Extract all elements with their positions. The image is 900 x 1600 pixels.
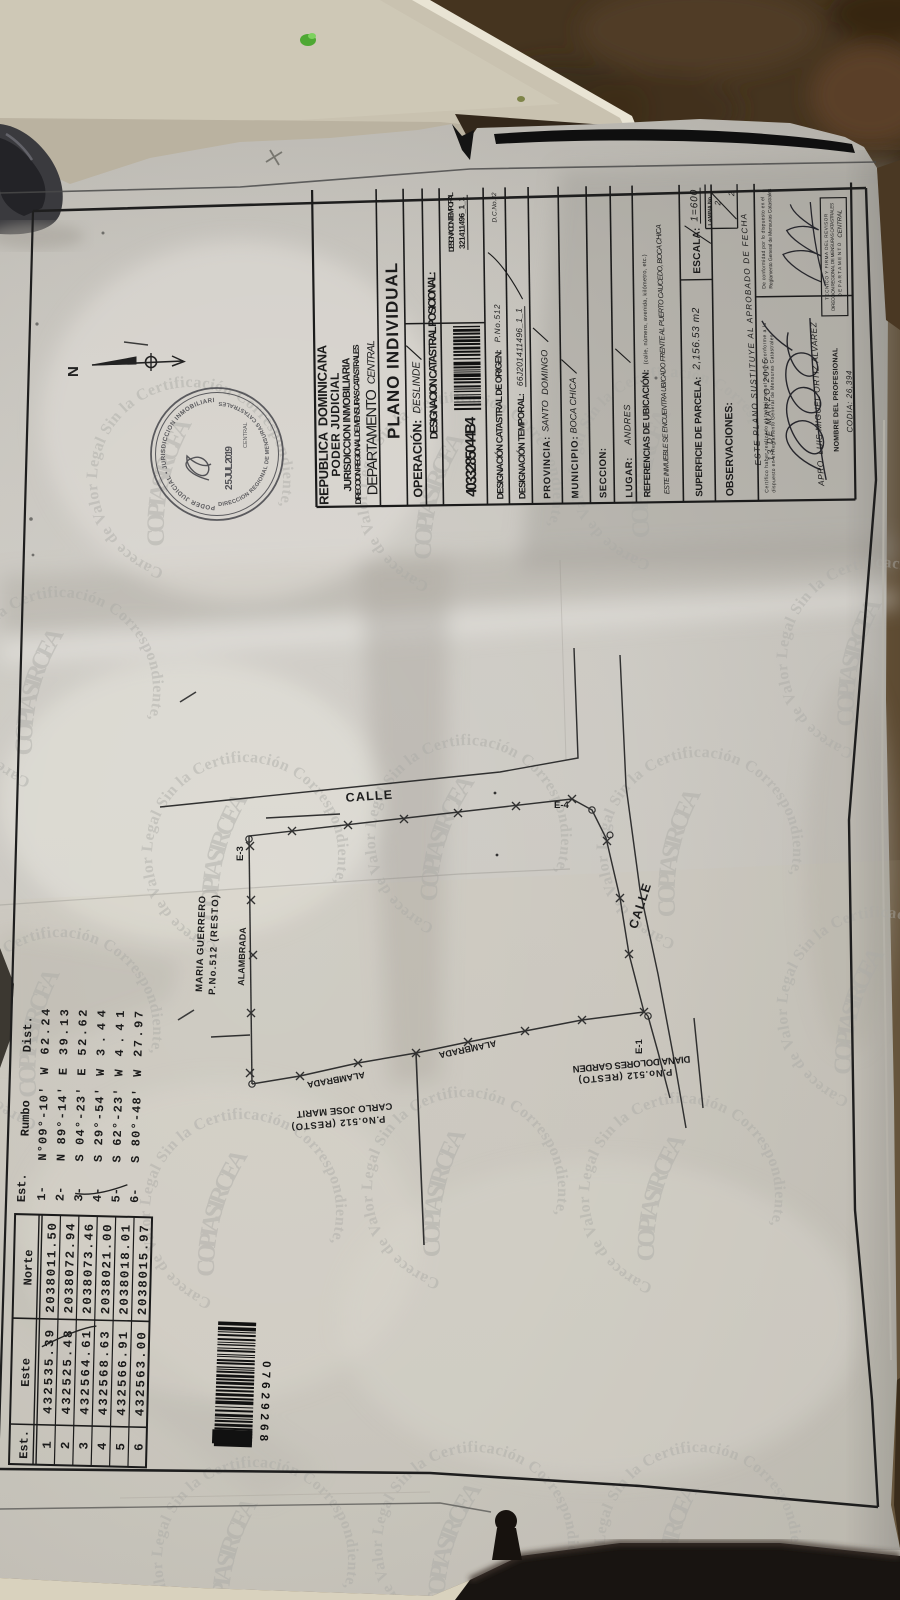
svg-text:4: 4 [96,1442,110,1450]
svg-text:SANTO DOMINGO: SANTO DOMINGO [539,350,550,432]
svg-text:6: 6 [133,1443,147,1451]
svg-text:REFERENCIAS DE UBICACIÓN:: REFERENCIAS DE UBICACIÓN: [640,369,653,497]
svg-text:ANDRES: ANDRES [622,405,633,446]
svg-text:N°09°-10': N°09°-10' [36,1087,52,1161]
svg-text:S 62°-23': S 62°-23' [110,1088,126,1162]
svg-text:BOCA CHICA: BOCA CHICA [568,377,579,433]
svg-text:432568.63: 432568.63 [97,1331,113,1415]
svg-text:2-: 2- [54,1187,68,1202]
svg-text:E-4: E-4 [554,800,570,811]
svg-text:2,156.53 m2: 2,156.53 m2 [691,307,703,371]
svg-text:432564.61: 432564.61 [78,1331,94,1415]
svg-text:2038072.94: 2038072.94 [62,1223,78,1314]
svg-text:432566.91: 432566.91 [115,1332,131,1416]
svg-text:66J201411496_1_1: 66J201411496_1_1 [514,308,525,386]
svg-text:PLANO INDIVIDUAL: PLANO INDIVIDUAL [382,263,403,439]
svg-text:2: 2 [727,191,736,197]
svg-text:CENTRAL: CENTRAL [243,422,249,448]
svg-text:2038021.00: 2038021.00 [99,1224,115,1314]
svg-text:2038011.50: 2038011.50 [44,1223,60,1313]
svg-text:S 29°-54': S 29°-54' [92,1088,108,1162]
svg-text:SECCION:: SECCION: [598,448,610,498]
svg-text:W: W [94,1068,108,1076]
svg-text:LUGAR:: LUGAR: [624,458,636,498]
svg-text:4033285044B4: 4033285044B4 [462,416,480,497]
svg-text:DESLINDE: DESLINDE [410,361,423,414]
svg-text:CODIA: 26,394: CODIA: 26,394 [845,370,855,433]
svg-text:OBSERVACIONES:: OBSERVACIONES: [723,402,736,496]
svg-text:4-: 4- [91,1187,105,1202]
svg-text:2038073.46: 2038073.46 [81,1224,97,1314]
svg-text:E: E [57,1068,71,1076]
svg-text:DESIGNACIÓN TEMPORAL:: DESIGNACIÓN TEMPORAL: [515,393,527,499]
svg-text:OPERACIÓN:: OPERACIÓN: [409,419,425,497]
svg-text:D.C.No.32: D.C.No.32 [491,192,498,223]
svg-text:SUPERFICIE DE PARCELA:: SUPERFICIE DE PARCELA: [693,377,706,497]
svg-text:2 5 JUL 2019: 2 5 JUL 2019 [224,446,235,490]
svg-text:P.No.512: P.No.512 [493,304,503,343]
svg-text:Est.: Est. [17,1430,32,1459]
svg-text:6-: 6- [128,1188,142,1203]
svg-text:PROVINCIA:: PROVINCIA: [542,437,554,499]
svg-text:62.24: 62.24 [39,1009,54,1055]
svg-text:Norte: Norte [21,1249,36,1285]
svg-text:Este: Este [19,1358,34,1387]
svg-text:432563.00: 432563.00 [133,1332,149,1416]
svg-text:Est.: Est. [15,1173,30,1202]
svg-text:Dist.: Dist. [21,1016,36,1052]
svg-text:S 80°-48': S 80°-48' [129,1089,145,1163]
svg-text:27.97: 27.97 [132,1011,147,1057]
svg-text:De conformidad por lo dispuest: De conformidad por lo dispuesto en el [760,197,767,289]
svg-text:3: 3 [77,1442,91,1450]
svg-text:321411496_1_1: 321411496_1_1 [457,196,467,249]
svg-text:W: W [131,1069,145,1077]
svg-text:DESIGNACION CATASTRAL POSICION: DESIGNACION CATASTRAL POSICIONAL: [426,271,440,439]
svg-text:W: W [38,1067,52,1075]
svg-text:E-1: E-1 [634,1039,645,1055]
svg-text:DEPARTAMENTO: DEPARTAMENTO [364,389,381,495]
svg-text:2038015.97: 2038015.97 [136,1225,152,1315]
svg-text:W: W [112,1068,126,1076]
svg-text:DESIGNACIÓN CATASTRAL DE ORIGE: DESIGNACIÓN CATASTRAL DE ORIGEN: [492,349,505,499]
svg-text:2: 2 [59,1441,73,1449]
svg-text:CENTRAL: CENTRAL [365,340,378,384]
svg-text:NOMBRE DEL PROFESIONAL: NOMBRE DEL PROFESIONAL [832,347,840,452]
svg-text:5: 5 [114,1443,128,1451]
svg-text:MUNICIPIO:: MUNICIPIO: [570,436,582,498]
svg-text:CENTRAL: CENTRAL [837,210,843,238]
svg-text:39.13: 39.13 [57,1009,72,1055]
svg-text:Rumbo: Rumbo [19,1100,34,1136]
svg-text:S 04°-23': S 04°-23' [73,1087,89,1161]
svg-text:1=600: 1=600 [689,189,700,222]
svg-text:2038018.01: 2038018.01 [117,1225,133,1315]
svg-text:E-3: E-3 [235,846,246,861]
svg-text:E: E [75,1068,89,1076]
svg-text:432525.48: 432525.48 [60,1330,76,1414]
svg-text:N: N [65,366,82,377]
svg-text:1-: 1- [35,1186,49,1201]
svg-text:52.62: 52.62 [76,1009,91,1055]
svg-text:1: 1 [41,1441,55,1449]
svg-text:DESIGNACION TEMPORAL: DESIGNACION TEMPORAL [446,192,456,252]
svg-text:ALAMBRADA: ALAMBRADA [236,927,248,986]
svg-text:N 89°-14': N 89°-14' [55,1087,71,1161]
